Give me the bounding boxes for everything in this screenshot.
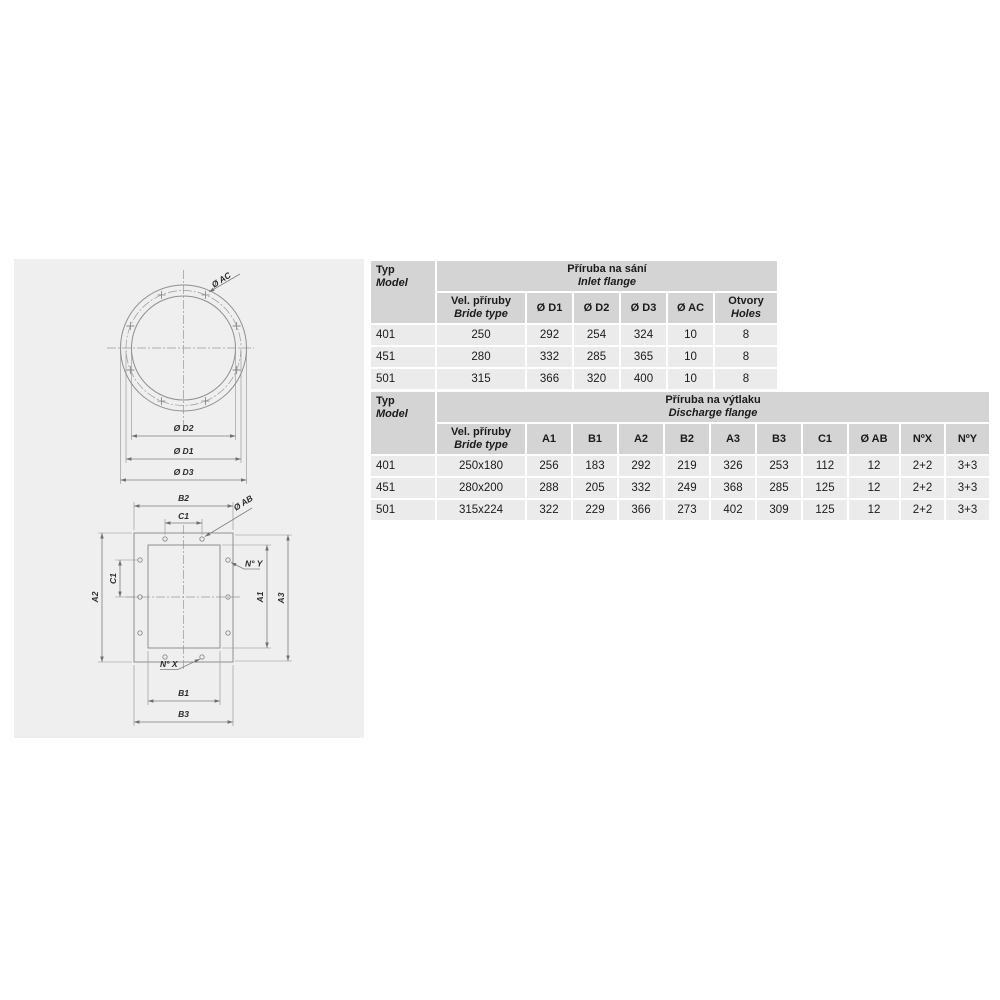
inlet-col-d2: Ø D2 [574, 293, 619, 323]
table-cell: 315x224 [437, 500, 525, 520]
flange-drawings: Ø AC Ø D2 Ø D1 Ø [14, 259, 364, 738]
table-cell: 401 [371, 456, 435, 476]
dim-label-ac: Ø AC [210, 269, 234, 289]
discharge-title-cz: Příruba na výtlaku [665, 394, 760, 407]
discharge-flange-drawing: B2 C1 Ø AB N° Y [90, 493, 292, 726]
table-cell: 250x180 [437, 456, 525, 476]
table-cell: 8 [715, 369, 777, 389]
dim-label-ab: Ø AB [232, 493, 255, 513]
inlet-col-d3: Ø D3 [621, 293, 666, 323]
table-cell: 183 [573, 456, 617, 476]
dim-a2: A2 [90, 533, 132, 662]
dim-label-c1-left: C1 [108, 573, 118, 584]
discharge-title-en: Discharge flange [669, 407, 758, 420]
table-cell: 2+2 [901, 478, 944, 498]
inlet-flange-drawing: Ø AC Ø D2 Ø D1 Ø [107, 269, 254, 484]
table-cell: 451 [371, 347, 435, 367]
table-cell: 205 [573, 478, 617, 498]
table-cell: 280x200 [437, 478, 525, 498]
table-cell: 320 [574, 369, 619, 389]
corner-line1: Typ [376, 264, 395, 277]
table-cell: 3+3 [946, 500, 989, 520]
inlet-col-ac: Ø AC [668, 293, 713, 323]
table-cell: 322 [527, 500, 571, 520]
table-cell: 249 [665, 478, 709, 498]
table-cell: 12 [849, 456, 899, 476]
callout-nx: N° X [160, 659, 200, 670]
datasheet-page: Ø AC Ø D2 Ø D1 Ø [0, 0, 1000, 1000]
table-cell: 366 [527, 369, 572, 389]
discharge-col-b1: B1 [573, 424, 617, 454]
callout-ab: Ø AB [205, 493, 255, 537]
table-cell: 288 [527, 478, 571, 498]
table-cell: 229 [573, 500, 617, 520]
table-cell: 401 [371, 325, 435, 345]
discharge-flange-table: Typ Model Příruba na výtlaku Discharge f… [371, 392, 989, 520]
dim-label-b2: B2 [178, 493, 189, 503]
dim-label-d2: Ø D2 [174, 423, 194, 433]
table-cell: 256 [527, 456, 571, 476]
inlet-col-bride-type: Vel. příruby Bride type [437, 293, 525, 323]
table-cell: 8 [715, 347, 777, 367]
table-cell: 2+2 [901, 456, 944, 476]
table-cell: 292 [619, 456, 663, 476]
callout-ac: Ø AC [209, 269, 240, 292]
table-cell: 219 [665, 456, 709, 476]
table-cell: 8 [715, 325, 777, 345]
discharge-bolt-holes [138, 537, 230, 659]
discharge-col-c1: C1 [803, 424, 847, 454]
table-cell: 332 [527, 347, 572, 367]
discharge-col-a3: A3 [711, 424, 755, 454]
table-cell: 273 [665, 500, 709, 520]
dim-label-a3: A3 [276, 592, 286, 604]
discharge-col-bride-type: Vel. příruby Bride type [437, 424, 525, 454]
table-cell: 125 [803, 500, 847, 520]
discharge-col-b3: B3 [757, 424, 801, 454]
table-cell: 368 [711, 478, 755, 498]
inlet-col-d1: Ø D1 [527, 293, 572, 323]
table-cell: 285 [757, 478, 801, 498]
inlet-corner-cell: Typ Model [371, 261, 435, 323]
table-cell: 309 [757, 500, 801, 520]
corner-line2: Model [376, 277, 408, 290]
table-cell: 366 [619, 500, 663, 520]
table-cell: 2+2 [901, 500, 944, 520]
discharge-col-a2: A2 [619, 424, 663, 454]
discharge-col-ab: Ø AB [849, 424, 899, 454]
dim-b1: B1 [148, 651, 220, 705]
discharge-col-a1: A1 [527, 424, 571, 454]
table-cell: 501 [371, 369, 435, 389]
table-cell: 402 [711, 500, 755, 520]
table-cell: 292 [527, 325, 572, 345]
inlet-col-holes: Otvory Holes [715, 293, 777, 323]
corner-line1: Typ [376, 395, 395, 408]
dim-label-b3: B3 [178, 709, 189, 719]
table-cell: 12 [849, 478, 899, 498]
inlet-title-cell: Příruba na sání Inlet flange [437, 261, 777, 291]
inlet-title-cz: Příruba na sání [567, 263, 646, 276]
corner-line2: Model [376, 408, 408, 421]
label-n-x: N° X [160, 659, 179, 669]
inlet-title-en: Inlet flange [578, 276, 636, 289]
table-cell: 250 [437, 325, 525, 345]
inlet-flange-table: Typ Model Příruba na sání Inlet flange V… [371, 261, 777, 389]
dim-label-b1: B1 [178, 688, 189, 698]
table-cell: 365 [621, 347, 666, 367]
table-cell: 10 [668, 325, 713, 345]
table-cell: 400 [621, 369, 666, 389]
table-cell: 501 [371, 500, 435, 520]
discharge-corner-cell: Typ Model [371, 392, 435, 454]
callout-ny: N° Y [231, 559, 264, 570]
dim-label-c1-top: C1 [178, 511, 189, 521]
discharge-title-cell: Příruba na výtlaku Discharge flange [437, 392, 989, 422]
discharge-col-ny: NºY [946, 424, 989, 454]
table-cell: 324 [621, 325, 666, 345]
table-cell: 3+3 [946, 456, 989, 476]
table-cell: 254 [574, 325, 619, 345]
table-cell: 125 [803, 478, 847, 498]
flange-drawing-panel: Ø AC Ø D2 Ø D1 Ø [14, 259, 364, 738]
table-cell: 285 [574, 347, 619, 367]
discharge-col-nx: NºX [901, 424, 944, 454]
table-cell: 112 [803, 456, 847, 476]
label-n-y: N° Y [245, 559, 264, 569]
table-cell: 315 [437, 369, 525, 389]
table-cell: 10 [668, 347, 713, 367]
dim-label-d3: Ø D3 [174, 467, 194, 477]
table-cell: 280 [437, 347, 525, 367]
dim-label-a2: A2 [90, 591, 100, 603]
table-cell: 12 [849, 500, 899, 520]
dim-label-a1: A1 [255, 591, 265, 603]
table-cell: 326 [711, 456, 755, 476]
table-cell: 451 [371, 478, 435, 498]
table-cell: 332 [619, 478, 663, 498]
table-cell: 3+3 [946, 478, 989, 498]
discharge-col-b2: B2 [665, 424, 709, 454]
table-cell: 253 [757, 456, 801, 476]
dim-label-d1: Ø D1 [174, 446, 194, 456]
table-cell: 10 [668, 369, 713, 389]
